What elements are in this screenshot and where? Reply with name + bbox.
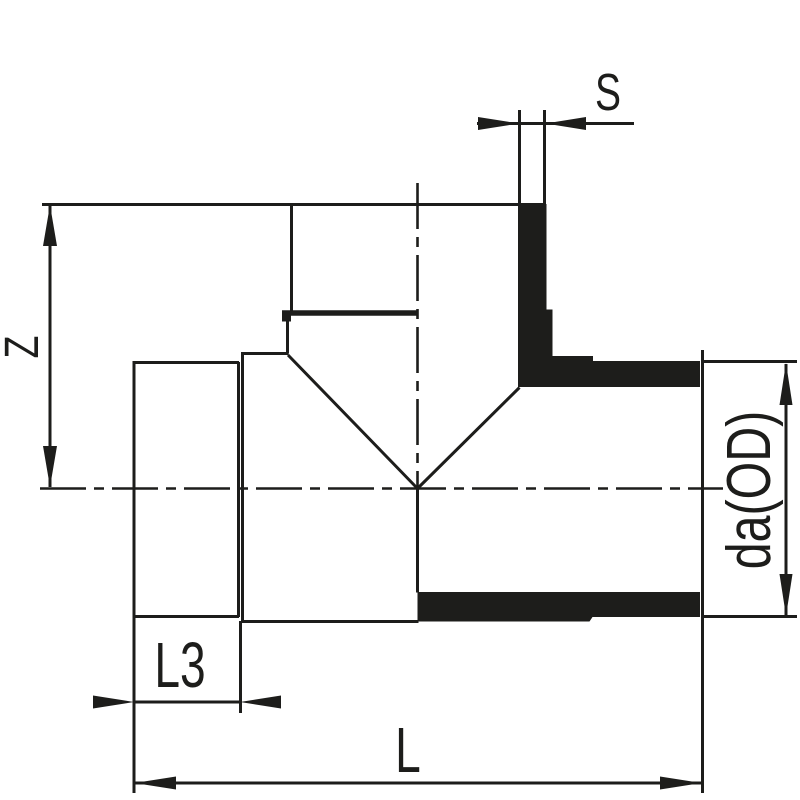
- s-arrow-right: [546, 117, 587, 130]
- drawing-canvas: [0, 0, 800, 800]
- dim-label-s: S: [595, 67, 621, 119]
- intersection-diagonal-right: [418, 388, 520, 489]
- s-arrow-left: [478, 117, 519, 130]
- l-arrow-right: [660, 777, 702, 790]
- dim-label-l: L: [395, 718, 421, 782]
- dimension-s: [477, 110, 634, 203]
- da-arrow-bottom: [780, 574, 793, 616]
- centerlines: [40, 183, 723, 489]
- dim-label-z: Z: [0, 336, 47, 359]
- lower-wall-section: [418, 592, 701, 622]
- dim-label-da: da(OD): [719, 411, 781, 570]
- socket-stop-bump: [282, 316, 291, 322]
- intersection-diagonal-left: [288, 355, 418, 489]
- l3-arrow-left: [93, 696, 134, 709]
- upper-wall-section: [518, 204, 700, 387]
- l3-arrow-right: [240, 696, 281, 709]
- da-arrow-top: [780, 363, 793, 405]
- section-fill: [418, 204, 701, 622]
- z-arrow-bottom: [43, 446, 57, 487]
- branch-socket-stop: [282, 313, 418, 322]
- l-arrow-left: [135, 777, 177, 790]
- fitting-outline: [42, 204, 703, 793]
- z-arrow-top: [43, 205, 57, 246]
- tee-fitting-technical-drawing: S Z L3 L da(OD): [0, 0, 800, 800]
- dim-label-l3: L3: [154, 633, 205, 697]
